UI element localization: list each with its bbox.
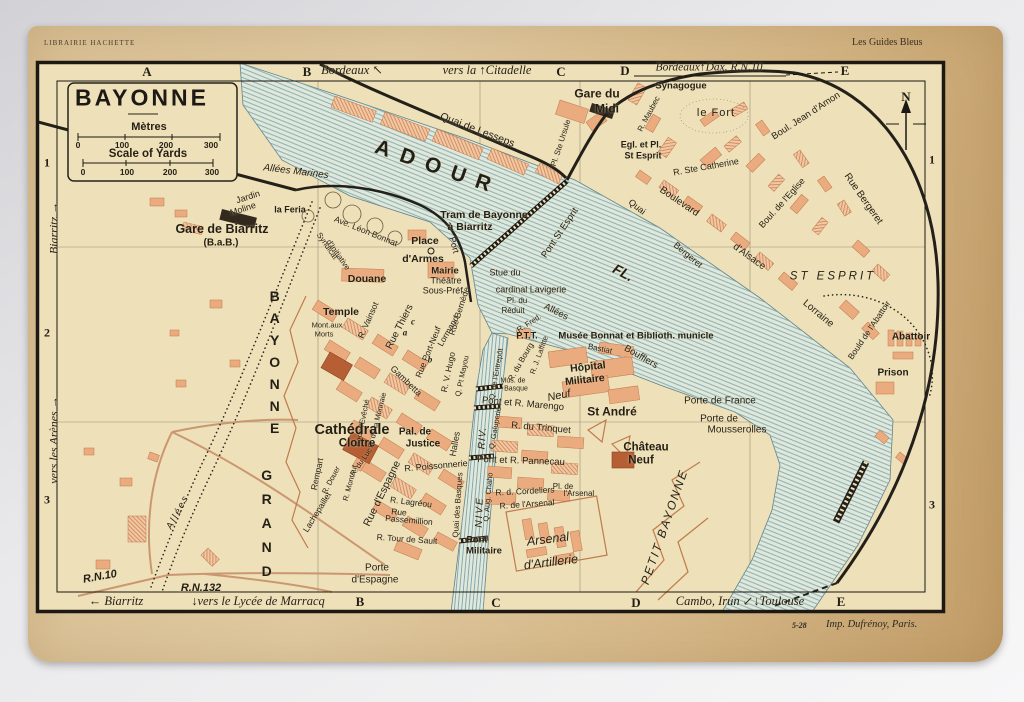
pont-pannecau bbox=[469, 456, 494, 458]
map-title: BAYONNE bbox=[75, 85, 209, 112]
chateau-neuf-building bbox=[612, 452, 634, 468]
scanned-map-page: LIBRAIRIE HACHETTE Les Guides Bleus BAYO… bbox=[0, 0, 1024, 702]
publisher-name: LIBRAIRIE HACHETTE bbox=[44, 39, 135, 47]
scale-metres-caption: Mètres bbox=[131, 121, 166, 133]
imprint-code: 5-28 bbox=[792, 621, 807, 630]
imprint-printer: Imp. Dufrénoy, Paris. bbox=[826, 619, 917, 630]
scale-yards-caption: Scale of Yards bbox=[109, 148, 187, 160]
series-name: Les Guides Bleus bbox=[852, 37, 923, 48]
